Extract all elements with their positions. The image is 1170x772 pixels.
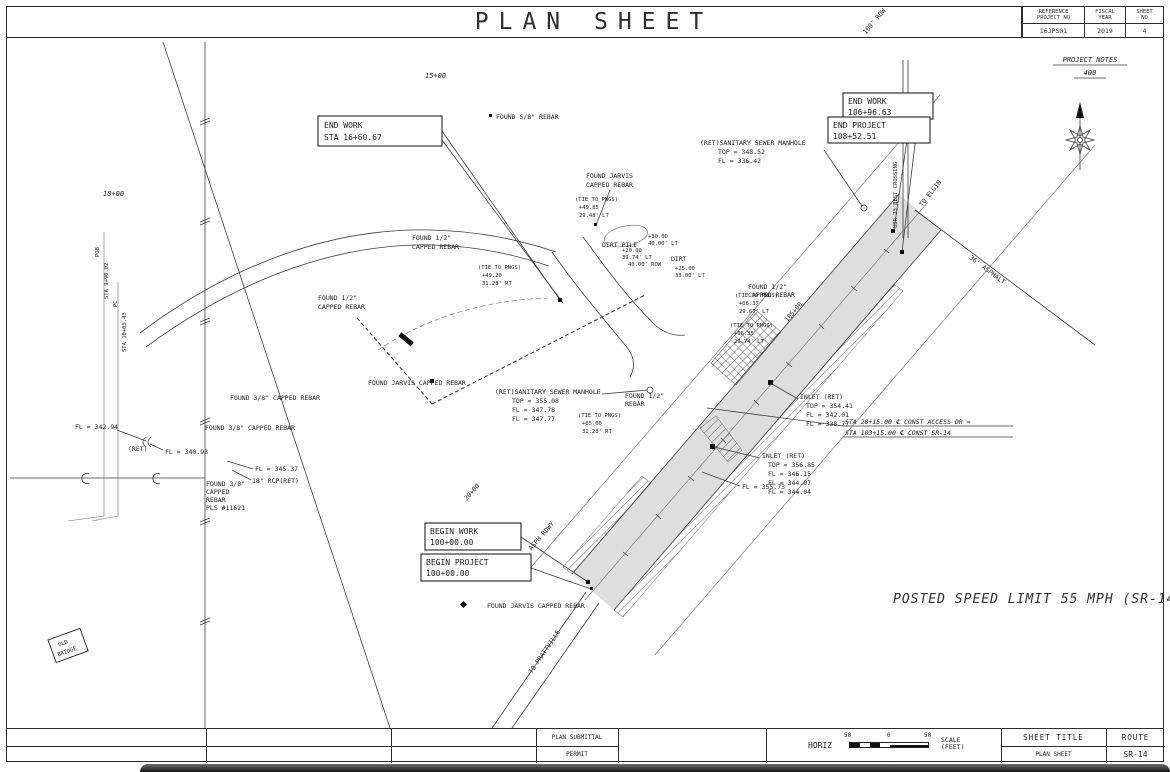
window-edge-strip (140, 764, 1170, 772)
leader-lines (117, 119, 1013, 589)
row-100-label: 100' ROW (861, 7, 887, 36)
svg-text:PLS #11621: PLS #11621 (206, 504, 245, 512)
svg-text:40.00' ROW: 40.00' ROW (628, 262, 662, 268)
dirt-label: DIRT (671, 255, 687, 263)
scale-segment (890, 743, 928, 747)
svg-text:100+00.00: 100+00.00 (426, 569, 470, 578)
station-20: 20+00 (462, 482, 481, 502)
svg-text:END WORK: END WORK (848, 97, 887, 106)
project-notes: PROJECT NOTES 400 (1053, 56, 1127, 78)
graphic-scale-bar (849, 742, 929, 748)
divider (7, 746, 618, 747)
svg-text:FL = 355.73: FL = 355.73 (742, 483, 785, 491)
horiz-label: HORIZ (808, 741, 832, 750)
svg-text:FL = 342.01: FL = 342.01 (806, 411, 849, 419)
svg-text:39.74' LT: 39.74' LT (622, 255, 652, 261)
svg-text:CAPPED REBAR: CAPPED REBAR (586, 181, 633, 189)
svg-text:(TIE TO PNGS): (TIE TO PNGS) (478, 265, 521, 271)
svg-text:31.28' RT: 31.28' RT (582, 429, 612, 435)
svg-text:(RET): (RET) (128, 445, 148, 453)
svg-text:FL = 346.15: FL = 346.15 (768, 470, 811, 478)
sheet-title-label: SHEET TITLE (1001, 729, 1106, 746)
best-crossing-label: USR 73 BEST CROSSING (893, 162, 899, 228)
plan-drawing: END WORK STA 16+60.67 END WORK 106+96.63… (0, 0, 1170, 772)
svg-text:TOP = 356.85: TOP = 356.85 (768, 461, 815, 469)
svg-text:FOUND 1/2": FOUND 1/2" (412, 234, 451, 242)
svg-text:END PROJECT: END PROJECT (833, 121, 886, 130)
svg-text:FL = 342.94: FL = 342.94 (75, 423, 118, 431)
svg-text:33.00' LT: 33.00' LT (675, 273, 705, 279)
svg-text:(TIE TO PNGS): (TIE TO PNGS) (578, 413, 621, 419)
plan-submittal-cell: PLAN SUBMITTAL (536, 729, 618, 746)
svg-text:+06.35: +06.35 (734, 331, 754, 337)
svg-text:106+96.63: 106+96.63 (848, 108, 892, 117)
svg-text:+25.00: +25.00 (675, 266, 695, 272)
svg-text:(RET)SANITARY SEWER MANHOLE: (RET)SANITARY SEWER MANHOLE (495, 388, 601, 396)
svg-text:(TIE TO PNGS): (TIE TO PNGS) (575, 197, 618, 203)
svg-text:CAPPED REBAR: CAPPED REBAR (412, 243, 459, 251)
svg-text:40.00' LT: 40.00' LT (648, 241, 678, 247)
svg-text:FL = 347.77: FL = 347.77 (512, 415, 555, 423)
svg-text:400: 400 (1084, 69, 1097, 77)
old-bridge: OLD BRIDGE (48, 628, 88, 662)
scale-units-label: SCALE (FEET) (941, 737, 964, 751)
svg-text:FOUND 3/8" CAPPED REBAR: FOUND 3/8" CAPPED REBAR (230, 394, 320, 402)
svg-text:FOUND JARVIS: FOUND JARVIS (586, 172, 633, 180)
svg-text:PROJECT NOTES: PROJECT NOTES (1063, 56, 1118, 64)
asphalt-36-label: 36' ASPHALT (968, 254, 1007, 286)
svg-text:FOUND 1/2": FOUND 1/2" (748, 283, 787, 291)
svg-text:FL = 336.42: FL = 336.42 (718, 157, 761, 165)
svg-text:REBAR: REBAR (206, 496, 226, 504)
scale-left-tick: 50 (844, 732, 851, 739)
scale-mid-tick: 0 (887, 732, 891, 739)
pob-sta-label: STA 9+90.02 (104, 263, 110, 299)
scale-right-tick: 50 (924, 732, 931, 739)
pc-label: PC (113, 300, 119, 307)
scale-segment (880, 743, 890, 747)
svg-text:18" RCP(RET): 18" RCP(RET) (252, 477, 299, 485)
svg-text:TOP = 348.52: TOP = 348.52 (718, 148, 765, 156)
svg-text:29.74' LT: 29.74' LT (734, 339, 764, 345)
callout-begin-work: BEGIN WORK 100+00.00 (425, 523, 521, 550)
to-prattville-label: TO PRATTVILLE (527, 628, 562, 675)
route-value: SR-14 (1106, 746, 1165, 763)
svg-text:FL = 340.93: FL = 340.93 (165, 448, 208, 456)
svg-text:31.28' RT: 31.28' RT (482, 281, 512, 287)
svg-text:BEGIN WORK: BEGIN WORK (430, 527, 478, 536)
svg-text:FL = 345.37: FL = 345.37 (255, 465, 298, 473)
svg-text:+06.37: +06.37 (739, 301, 759, 307)
svg-text:END WORK: END WORK (324, 121, 363, 130)
svg-text:FOUND 3/8" CAPPED REBAR: FOUND 3/8" CAPPED REBAR (205, 424, 295, 432)
callout-end-work-sta: END WORK STA 16+60.67 (318, 116, 442, 146)
pc-sta-label: STA 10+03.43 (122, 312, 128, 352)
highway-sr14 (563, 194, 941, 617)
north-arrow-icon (1060, 102, 1100, 170)
pob-label: POB (95, 246, 101, 257)
divider (766, 729, 767, 763)
svg-text:100+00.00: 100+00.00 (430, 538, 474, 547)
svg-text:TOP = 354.41: TOP = 354.41 (806, 402, 853, 410)
svg-text:CAPPED: CAPPED (206, 488, 230, 496)
svg-text:+49.20: +49.20 (482, 273, 502, 279)
posted-speed-note: POSTED SPEED LIMIT 55 MPH (SR-14) (893, 592, 1170, 607)
svg-text:STA 16+60.67: STA 16+60.67 (324, 133, 382, 142)
scale-segment (850, 743, 860, 747)
svg-text:INLET (RET): INLET (RET) (800, 393, 843, 401)
route-label: ROUTE (1106, 729, 1165, 746)
svg-text:FOUND 1/2": FOUND 1/2" (625, 392, 664, 400)
svg-text:(TIE TO PNGS): (TIE TO PNGS) (730, 323, 773, 329)
permit-cell: PERMIT (536, 746, 618, 763)
svg-text:+05.00: +05.00 (582, 421, 602, 427)
svg-text:FOUND JARVIS CAPPED REBAR: FOUND JARVIS CAPPED REBAR (487, 602, 585, 610)
svg-text:TOP = 355.08: TOP = 355.08 (512, 397, 559, 405)
callout-end-work-2: END WORK 106+96.63 (843, 93, 933, 119)
scale-segment (870, 743, 880, 747)
sta-equation-line1: STA 20+15.00 ℄ CONST ACCESS DR = (845, 418, 971, 426)
to-elgin-label: TO ELGIN (918, 179, 944, 209)
callout-begin-project: BEGIN PROJECT 100+00.00 (421, 554, 531, 581)
dirt-pile-label: DIRT PILE (602, 241, 637, 249)
svg-text:FOUND JARVIS CAPPED REBAR: FOUND JARVIS CAPPED REBAR (368, 379, 466, 387)
bottom-title-bar: PLAN SUBMITTAL PERMIT SHEET TITLE PLAN S… (6, 728, 1164, 762)
svg-text:REBAR: REBAR (625, 400, 645, 408)
svg-text:CAPPED REBAR: CAPPED REBAR (318, 303, 365, 311)
svg-text:(TIE TO PNGS): (TIE TO PNGS) (735, 293, 778, 299)
svg-text:FOUND 3/8": FOUND 3/8" (206, 480, 245, 488)
scale-segment (860, 743, 870, 747)
divider (618, 729, 619, 763)
station-10: 10+00 (103, 190, 124, 198)
svg-text:+30.00: +30.00 (648, 234, 668, 240)
svg-text:FOUND 5/8" REBAR: FOUND 5/8" REBAR (496, 113, 559, 121)
station-15: 15+00 (425, 72, 446, 80)
callout-end-project: END PROJECT 108+52.51 (828, 117, 930, 143)
svg-text:INLET (RET): INLET (RET) (762, 452, 805, 460)
svg-text:(RET)SANITARY SEWER MANHOLE: (RET)SANITARY SEWER MANHOLE (700, 139, 806, 147)
plan-sheet-page: PLAN SHEET REFERENCEPROJECT NO FISCALYEA… (0, 0, 1170, 772)
svg-text:FOUND 1/2": FOUND 1/2" (318, 294, 357, 302)
sta-equation-line2: STA 103+15.00 ℄ CONST SR-14 (845, 429, 951, 437)
sheet-title-value: PLAN SHEET (1001, 746, 1106, 763)
svg-text:FL = 347.78: FL = 347.78 (512, 406, 555, 414)
svg-text:108+52.51: 108+52.51 (833, 132, 877, 141)
svg-text:29.48' LT: 29.48' LT (579, 213, 609, 219)
asph-rdwy-label: ASPH RDWY (527, 520, 556, 552)
svg-text:FL = 338.77: FL = 338.77 (806, 420, 849, 428)
svg-text:+49.85: +49.85 (579, 205, 599, 211)
svg-text:BEGIN PROJECT: BEGIN PROJECT (426, 558, 489, 567)
svg-text:29.67' LT: 29.67' LT (739, 309, 769, 315)
